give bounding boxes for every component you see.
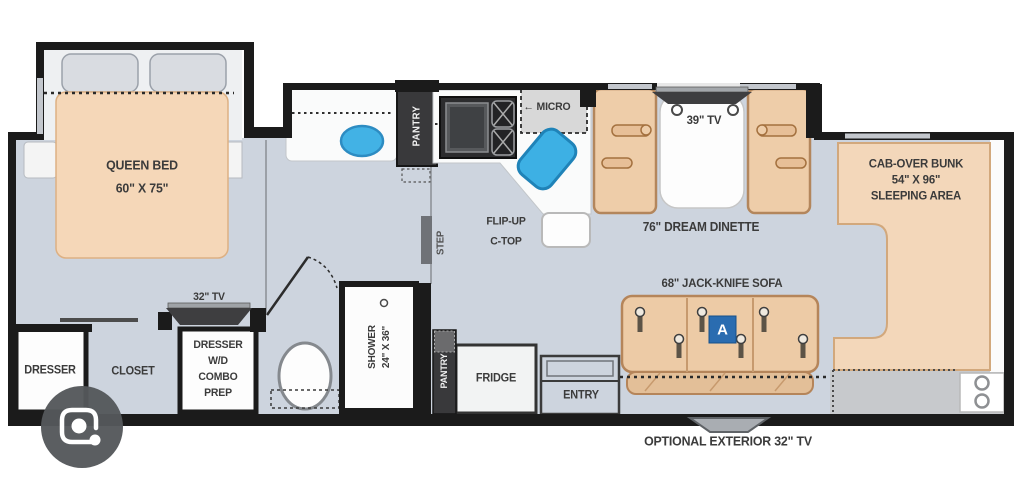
bath-sink bbox=[341, 126, 383, 156]
nightstand-left bbox=[24, 142, 57, 178]
dinette-tv-label: 39" TV bbox=[687, 113, 722, 129]
flip-up-ctop-label: FLIP-UP C-TOP bbox=[486, 212, 525, 253]
exterior-tv-mount bbox=[690, 418, 768, 432]
entry-label: ENTRY bbox=[563, 389, 599, 404]
sofa-seat-badge-label: A bbox=[717, 320, 728, 340]
dinette-label: 76" DREAM DINETTE bbox=[643, 219, 760, 235]
queen-bed-label: QUEEN BED 60" X 75" bbox=[106, 154, 178, 200]
lens-camera-corner-dot bbox=[90, 435, 101, 446]
fridge-label: FRIDGE bbox=[476, 372, 516, 387]
window-bed-slide bbox=[37, 78, 43, 134]
queen-bed-label-line1: QUEEN BED bbox=[106, 154, 178, 177]
dinette-tv-bracket bbox=[656, 87, 748, 92]
dinette-tv bbox=[652, 92, 752, 104]
pantry-upper-label: PANTRY bbox=[411, 106, 424, 147]
dinette-tv-knob-right bbox=[728, 105, 738, 115]
sofa-label: 68" JACK-KNIFE SOFA bbox=[662, 276, 783, 292]
pillow-right bbox=[150, 54, 226, 92]
step-platform bbox=[421, 216, 432, 264]
bench-left-belt2 bbox=[602, 158, 632, 168]
step-label: STEP bbox=[435, 231, 448, 255]
flip-up-line2: C-TOP bbox=[486, 232, 525, 252]
dinette-bench-left bbox=[594, 89, 656, 213]
dinette-tv-knob-left bbox=[672, 105, 682, 115]
cab-over-line1: CAB-OVER BUNK bbox=[869, 156, 963, 172]
jackknife-sofa-skirt bbox=[627, 372, 813, 394]
exterior-tv-label: OPTIONAL EXTERIOR 32" TV bbox=[644, 434, 812, 451]
queen-bed-label-line2: 60" X 75" bbox=[106, 177, 178, 200]
bedroom-tv-label: 32" TV bbox=[193, 290, 225, 304]
nightstand-right bbox=[227, 142, 242, 178]
flip-up-line1: FLIP-UP bbox=[486, 212, 525, 232]
wall-dinette-left-stub bbox=[580, 84, 596, 107]
wall-bed-slide-right bbox=[244, 42, 254, 137]
pantry-lower-dashed-top bbox=[435, 331, 455, 352]
bench-right-belt1-buckle bbox=[757, 125, 767, 135]
wall-tv-stub-right bbox=[250, 308, 266, 332]
pantry-upper-dashed-box bbox=[402, 169, 430, 182]
dresser-wd-line4: PREP bbox=[193, 386, 242, 402]
micro-arrow-icon: ← bbox=[524, 101, 534, 113]
pantry-lower-label: PANTRY bbox=[438, 354, 450, 389]
range-griddle-inner bbox=[450, 107, 484, 148]
flip-up-countertop bbox=[542, 213, 590, 247]
wall-pantry-top bbox=[395, 80, 439, 92]
shower-label-line1: SHOWER bbox=[365, 325, 379, 369]
cupholder-top bbox=[976, 377, 989, 390]
dinette-bench-right bbox=[748, 89, 810, 213]
rv-floorplan-screenshot: QUEEN BED 60" X 75" 32" TV DRESSER CLOSE… bbox=[0, 0, 1024, 487]
windshield-strip bbox=[990, 140, 1006, 372]
dresser-wd-label: DRESSER W/D COMBO PREP bbox=[193, 338, 242, 402]
lens-camera-button[interactable] bbox=[41, 386, 123, 468]
wall-bath-left bbox=[283, 83, 292, 137]
wall-right bbox=[1004, 132, 1014, 426]
cab-over-line2: 54" X 96" bbox=[869, 172, 963, 188]
bedroom-tv bbox=[166, 308, 252, 325]
lens-camera-lens-dot bbox=[72, 419, 87, 434]
wall-tv-stub-left bbox=[158, 312, 172, 330]
closet-rod bbox=[60, 318, 138, 322]
wall-dresser-top bbox=[8, 324, 92, 332]
sofa bbox=[622, 296, 818, 394]
shower-label-line2: 24" X 36" bbox=[379, 325, 393, 369]
wall-shower-left bbox=[416, 283, 431, 414]
cupholder-bottom bbox=[976, 395, 989, 408]
dresser-label: DRESSER bbox=[24, 364, 75, 379]
shower-label: SHOWER 24" X 36" bbox=[365, 325, 393, 369]
micro-label-text: MICRO bbox=[537, 101, 571, 113]
dinette bbox=[594, 89, 810, 213]
wall-left bbox=[8, 132, 16, 426]
toilet bbox=[279, 343, 331, 409]
window-cab-over bbox=[845, 134, 930, 139]
cab-over-label: CAB-OVER BUNK 54" X 96" SLEEPING AREA bbox=[869, 156, 963, 205]
dresser-wd-line3: COMBO bbox=[193, 370, 242, 386]
bench-left-belt1-buckle bbox=[641, 125, 651, 135]
entry-steps-box bbox=[541, 356, 619, 414]
window-dinette-left bbox=[608, 84, 652, 89]
cab-over-line3: SLEEPING AREA bbox=[869, 188, 963, 204]
bench-right-belt2 bbox=[776, 158, 806, 168]
wall-dinette-right-stub bbox=[806, 84, 822, 138]
dresser-wd-line1: DRESSER bbox=[193, 338, 242, 354]
wall-bottom bbox=[8, 414, 1014, 426]
closet-label: CLOSET bbox=[111, 365, 154, 380]
pillow-left bbox=[62, 54, 138, 92]
dresser-wd-line2: W/D bbox=[193, 354, 242, 370]
micro-label: ← MICRO bbox=[524, 100, 571, 114]
wall-bed-slide-top bbox=[36, 42, 250, 50]
window-dinette-right bbox=[740, 84, 796, 89]
